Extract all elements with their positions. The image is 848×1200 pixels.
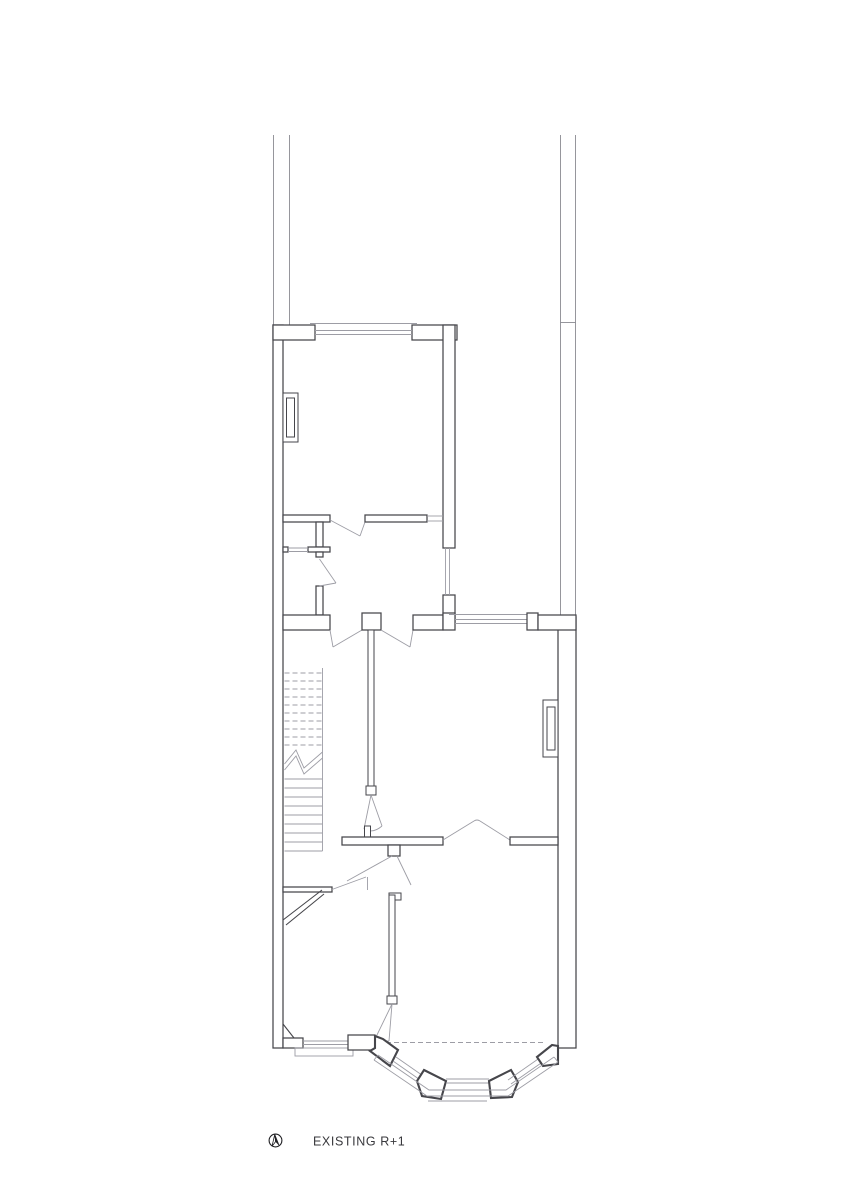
left-exterior-wall	[273, 325, 283, 1048]
hall-partition	[364, 630, 382, 838]
staircase	[285, 668, 323, 851]
bay-mullion-right	[489, 1070, 518, 1098]
north-arrow-icon	[269, 1134, 282, 1147]
door-pier	[362, 613, 381, 630]
closet-b-wall	[316, 552, 323, 557]
window-sill	[295, 1048, 353, 1056]
right-exterior-wall	[558, 617, 576, 1048]
right-boundary-wall	[561, 323, 576, 618]
plan-title: EXISTING R+1	[313, 1135, 405, 1149]
wing-right-wall	[443, 325, 455, 548]
mid-partitions	[283, 515, 443, 615]
closet-a-wall	[316, 522, 323, 547]
exterior-walls	[273, 324, 576, 1049]
drawing-sheet: EXISTING R+1	[0, 0, 848, 1200]
rear-room-chimney	[283, 393, 298, 442]
cross-wall	[283, 613, 576, 647]
double-door	[443, 821, 474, 840]
room-partition	[389, 895, 395, 998]
chamfer-wall	[283, 890, 322, 920]
lobby-pier	[388, 845, 400, 856]
stair-break-line	[285, 750, 323, 768]
fireplace	[543, 700, 558, 757]
bay-window	[370, 1036, 558, 1101]
front-left-room	[283, 877, 401, 1056]
lobby-walls	[342, 820, 558, 885]
floor-plan: EXISTING R+1	[0, 0, 848, 1200]
